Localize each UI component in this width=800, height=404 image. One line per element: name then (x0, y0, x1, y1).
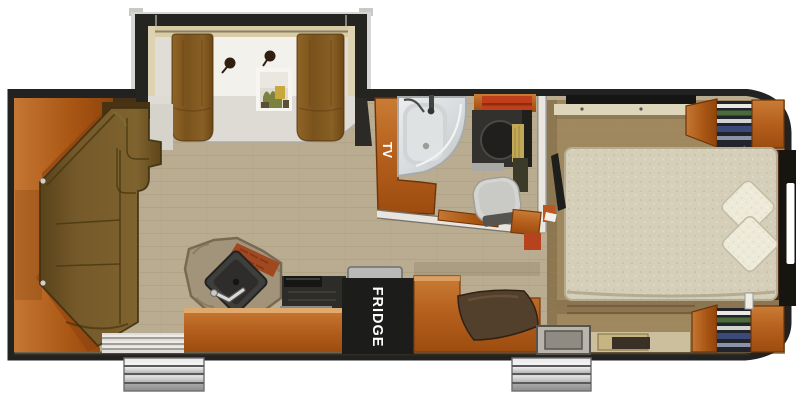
svg-text:FRIDGE: FRIDGE (369, 287, 385, 348)
svg-text:TV: TV (380, 142, 394, 159)
